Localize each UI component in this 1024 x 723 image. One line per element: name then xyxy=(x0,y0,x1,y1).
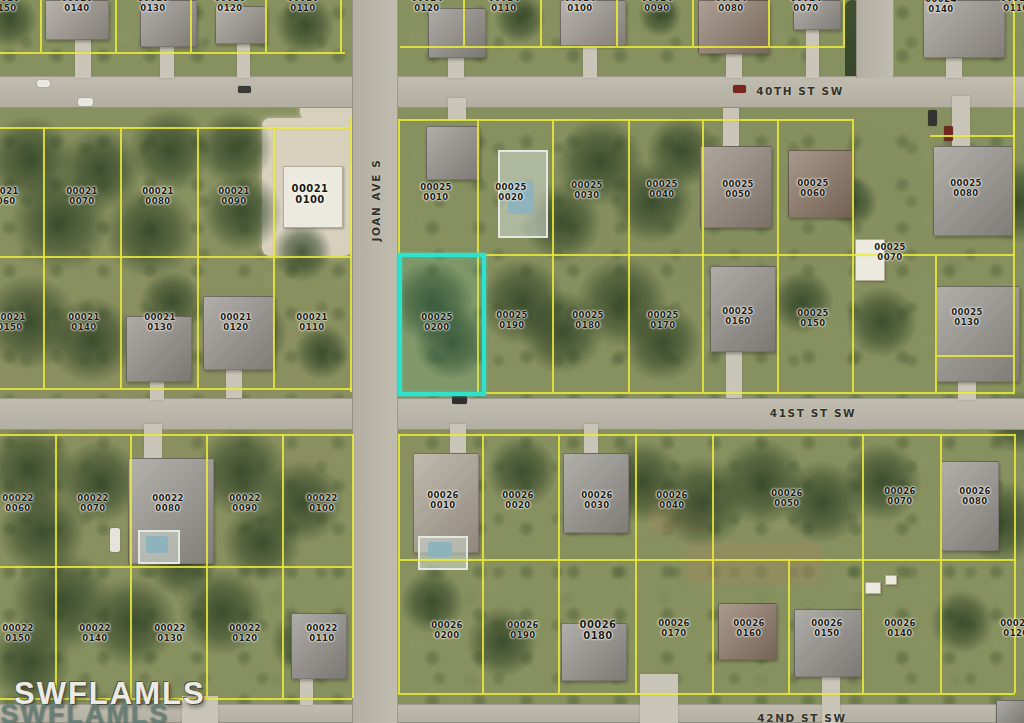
street-label: 40TH ST SW xyxy=(756,85,844,97)
aerial-parcel-map: 0002001500002001400002001300002001200002… xyxy=(0,0,1024,723)
street-labels-layer: 40TH ST SW41ST ST SW42ND ST SWJOAN AVE S xyxy=(0,0,1024,723)
mls-watermark-shadow: SWFLAMLS xyxy=(0,699,169,723)
street-label: 42ND ST SW xyxy=(757,712,846,723)
street-label: JOAN AVE S xyxy=(370,158,382,241)
street-label: 41ST ST SW xyxy=(770,407,857,419)
